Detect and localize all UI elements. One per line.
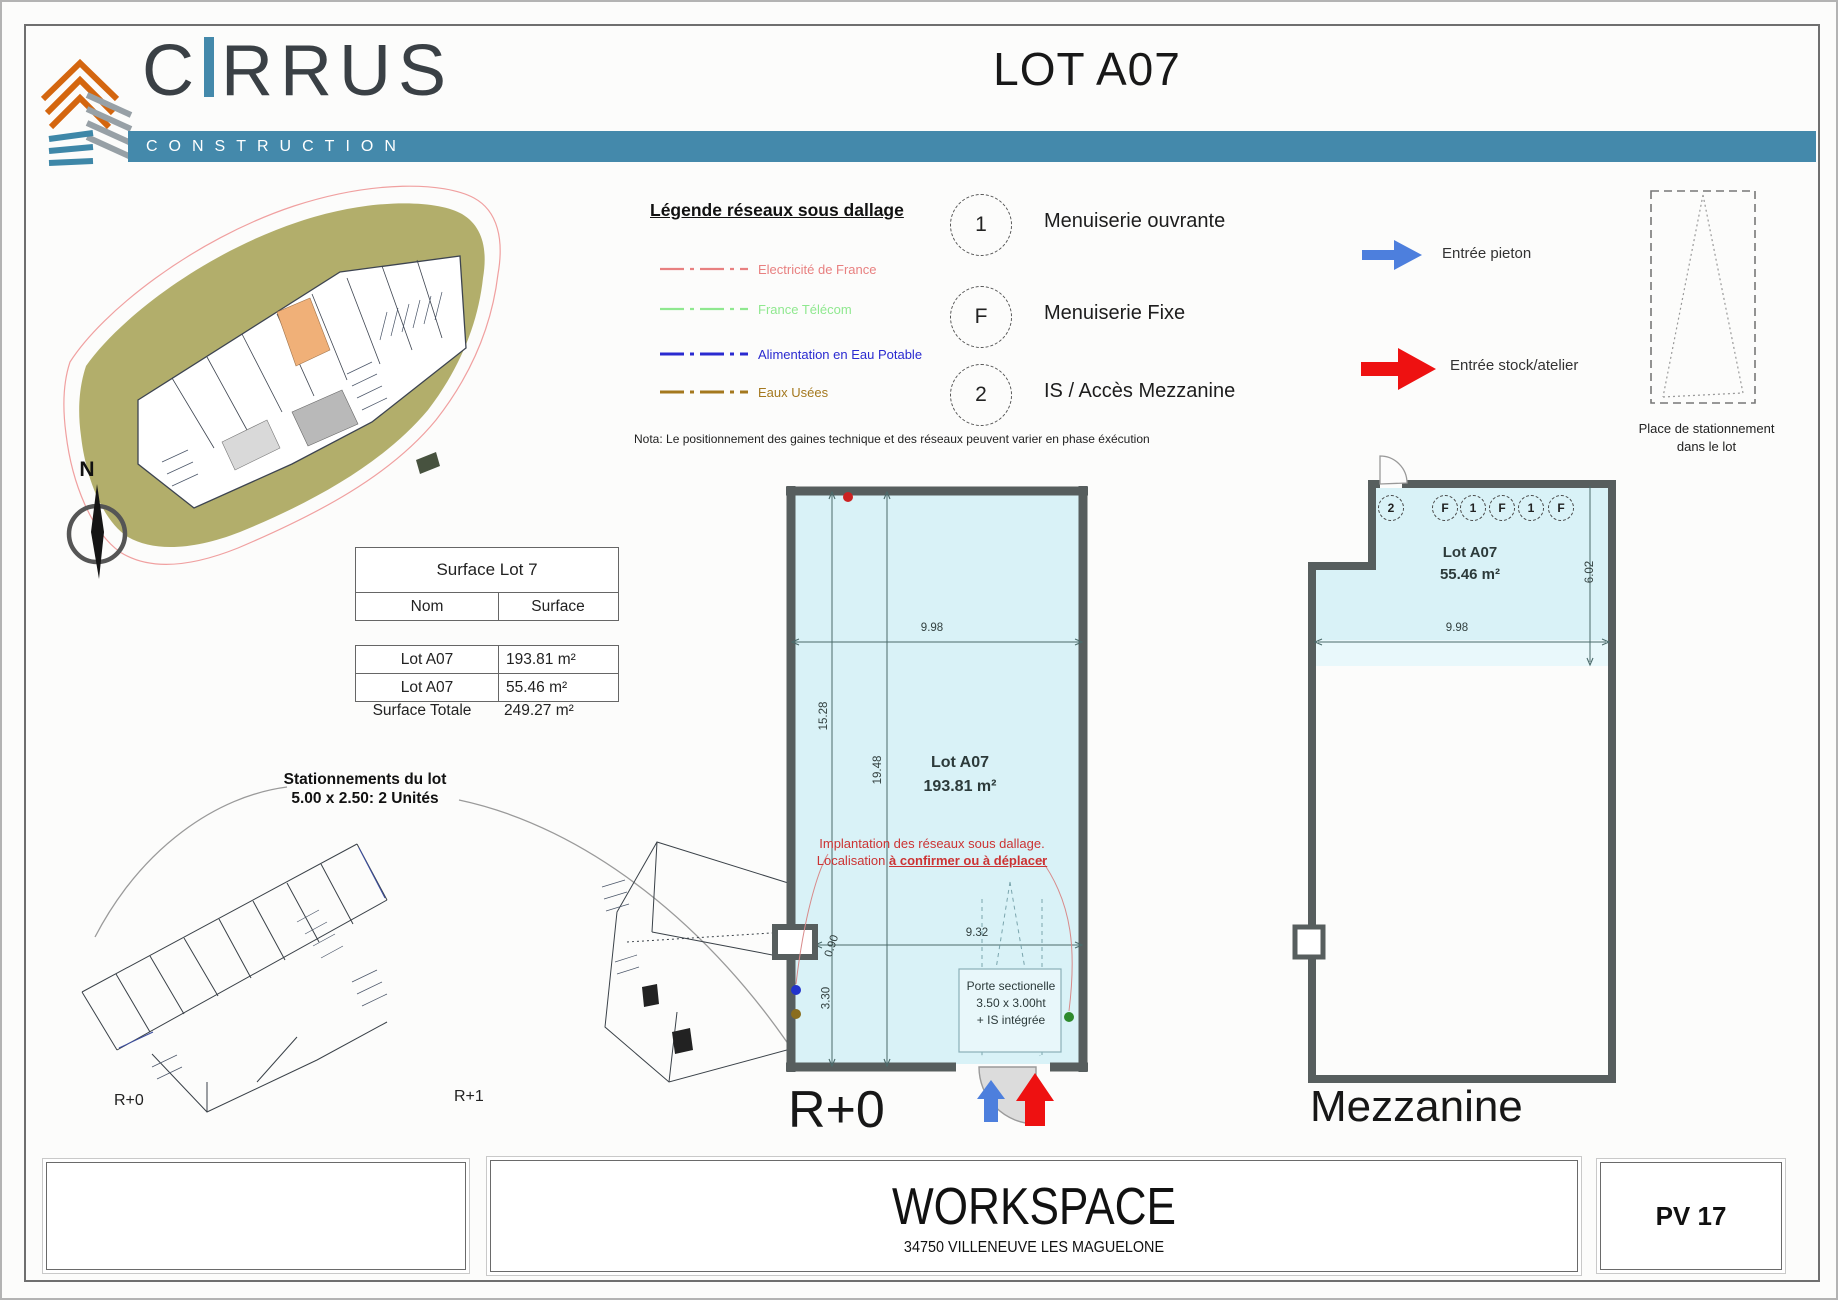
opening-symbol-f-glyph: F xyxy=(975,305,988,329)
legend-line-eaux-usees xyxy=(658,387,750,397)
mezzanine-plan-label: Mezzanine xyxy=(1310,1082,1523,1132)
compass-north-label: N xyxy=(72,458,102,482)
parking-spot-label-1: Place de stationnement xyxy=(1614,420,1799,437)
surface-row-2-value: 55.46 m² xyxy=(498,679,618,697)
mezz-lot-area: 55.46 m² xyxy=(1410,566,1530,583)
r0-door-note-line2: 3.50 x 3.00ht xyxy=(962,996,1060,1010)
mezz-floor-edge-band xyxy=(1316,640,1608,666)
keyplan-r0-label: R+0 xyxy=(114,1092,144,1110)
r0-door-note-line3: + IS intégrée xyxy=(962,1013,1060,1027)
titleblock-center-box: WORKSPACE 34750 VILLENEUVE LES MAGUELONE xyxy=(490,1160,1578,1272)
opening-label-1: Menuiserie ouvrante xyxy=(1044,210,1225,233)
opening-label-2: IS / Accès Mezzanine xyxy=(1044,380,1235,403)
legend-line-telecom xyxy=(658,304,750,314)
pedestrian-entry-direction-icon xyxy=(977,1080,1005,1122)
surface-row-1-divider xyxy=(498,646,499,673)
mezz-door-swing xyxy=(1380,456,1407,484)
r0-network-note-line2: Localisation à confirmer ou à déplacer xyxy=(802,852,1062,869)
keyplan-r1-label: R+1 xyxy=(454,1088,484,1106)
legend-nota: Nota: Le positionnement des gaines techn… xyxy=(634,432,1234,446)
sheet-number: PV 17 xyxy=(1656,1201,1727,1232)
legend-line-eau xyxy=(658,349,750,359)
brand-banner: CONSTRUCTION xyxy=(128,131,1816,162)
mezz-symbol-f3: F xyxy=(1548,495,1574,521)
r0-network-dot-blue xyxy=(791,985,801,995)
mezz-column xyxy=(1295,927,1323,957)
opening-symbol-2-glyph: 2 xyxy=(975,383,987,407)
legend-label-edf: Electricité de France xyxy=(758,262,877,277)
r0-dim-330: 3.30 xyxy=(821,971,833,1026)
r0-dim-width-lower: 9.32 xyxy=(937,927,1017,939)
mezz-symbol-2-glyph: 2 xyxy=(1388,501,1395,515)
mezz-symbol-f2-glyph: F xyxy=(1498,501,1505,515)
drawing-sheet: CRRUS CONSTRUCTION LOT A07 N Légende rés… xyxy=(0,0,1838,1300)
mezz-symbol-f2: F xyxy=(1489,495,1515,521)
surface-total-label: Surface Totale xyxy=(342,702,502,720)
sheet-title: LOT A07 xyxy=(907,42,1267,96)
legend-title: Légende réseaux sous dallage xyxy=(650,200,904,221)
r0-network-note-prefix: Localisation xyxy=(817,853,889,868)
legend-line-edf xyxy=(658,264,750,274)
titleblock-left-box xyxy=(46,1162,466,1270)
r0-dim-width-total: 9.98 xyxy=(872,622,992,634)
pedestrian-entry-arrow-icon xyxy=(1360,237,1426,273)
r0-network-note-line1-text: Implantation des réseaux sous dallage. xyxy=(819,836,1044,851)
leader-arcs xyxy=(95,787,799,1060)
surface-row-2: Lot A07 55.46 m² xyxy=(356,673,618,701)
brand-name-c: C xyxy=(142,31,201,111)
r0-network-dot-green xyxy=(1064,1012,1074,1022)
mezz-symbol-12: 1 xyxy=(1518,495,1544,521)
mezz-lot-name: Lot A07 xyxy=(1410,544,1530,561)
brand-name-rest: RRUS xyxy=(221,31,453,111)
surface-table-divider xyxy=(498,593,499,620)
r0-dim-height-mid: 19.48 xyxy=(872,740,884,800)
r0-lot-name: Lot A07 xyxy=(900,754,1020,772)
titleblock-sheet-box: PV 17 xyxy=(1600,1162,1782,1270)
legend-label-telecom: France Télécom xyxy=(758,302,852,317)
surface-table-columns-row: Nom Surface xyxy=(356,592,618,620)
opening-symbol-2: 2 xyxy=(950,364,1012,426)
r0-network-dot-red xyxy=(843,492,853,502)
surface-row-2-divider xyxy=(498,674,499,701)
mezz-symbol-11: 1 xyxy=(1460,495,1486,521)
surface-table-header: Surface Lot 7 Nom Surface xyxy=(355,547,619,621)
opening-label-f: Menuiserie Fixe xyxy=(1044,302,1185,325)
r0-dim-height-left: 15.28 xyxy=(818,686,830,746)
pedestrian-entry-label: Entrée pieton xyxy=(1442,245,1531,262)
surface-row-1: Lot A07 193.81 m² xyxy=(356,646,618,673)
surface-table-body: Lot A07 193.81 m² Lot A07 55.46 m² xyxy=(355,645,619,702)
surface-row-2-name: Lot A07 xyxy=(356,679,498,697)
site-dark-block xyxy=(416,452,440,474)
surface-table-title: Surface Lot 7 xyxy=(436,560,537,580)
keyplan-r0-sketch xyxy=(82,844,387,1112)
r0-door-note-line1: Porte sectionelle xyxy=(962,979,1060,993)
r0-network-note-underlined: à confirmer ou à déplacer xyxy=(889,853,1047,868)
legend-label-eaux-usees: Eaux Usées xyxy=(758,385,828,400)
mezz-symbol-f1-glyph: F xyxy=(1441,501,1448,515)
surface-row-1-name: Lot A07 xyxy=(356,651,498,669)
r0-network-dot-brown xyxy=(791,1009,801,1019)
project-address: 34750 VILLENEUVE LES MAGUELONE xyxy=(545,1239,1522,1257)
project-name: WORKSPACE xyxy=(572,1177,1495,1237)
mezz-symbol-f1: F xyxy=(1432,495,1458,521)
opening-symbol-1-glyph: 1 xyxy=(975,213,987,237)
r0-lot-area: 193.81 m² xyxy=(900,778,1020,796)
brand-name: CRRUS xyxy=(142,35,453,107)
surface-total-value: 249.27 m² xyxy=(504,702,574,720)
mezz-symbol-11-glyph: 1 xyxy=(1470,501,1477,515)
opening-symbol-f: F xyxy=(950,286,1012,348)
parking-spot-icon xyxy=(1647,187,1762,412)
stock-entry-label: Entrée stock/atelier xyxy=(1450,357,1578,374)
r0-column xyxy=(775,927,815,957)
surface-col-name: Nom xyxy=(356,598,498,616)
surface-row-1-value: 193.81 m² xyxy=(498,651,618,669)
stock-entry-direction-icon xyxy=(1016,1073,1054,1126)
brand-subtitle: CONSTRUCTION xyxy=(128,131,1816,156)
mezz-dim-height: 6.02 xyxy=(1584,542,1596,602)
stock-entry-arrow-icon xyxy=(1358,342,1440,396)
entry-direction-arrows xyxy=(964,1072,1064,1132)
surface-col-surface: Surface xyxy=(498,598,618,616)
surface-table-title-row: Surface Lot 7 xyxy=(356,548,618,592)
legend-label-eau: Alimentation en Eau Potable xyxy=(758,347,922,362)
mezz-symbol-12-glyph: 1 xyxy=(1528,501,1535,515)
opening-symbol-1: 1 xyxy=(950,194,1012,256)
mezz-dim-width: 9.98 xyxy=(1417,622,1497,634)
mezz-symbol-f3-glyph: F xyxy=(1557,501,1564,515)
logo-building-icon xyxy=(35,37,140,167)
parking-spot-label-2: dans le lot xyxy=(1614,438,1799,455)
r0-plan-label: R+0 xyxy=(788,1080,885,1140)
mezz-symbol-2: 2 xyxy=(1378,495,1404,521)
r0-network-note-line1: Implantation des réseaux sous dallage. xyxy=(802,835,1062,852)
brand-i-bar xyxy=(204,37,214,97)
